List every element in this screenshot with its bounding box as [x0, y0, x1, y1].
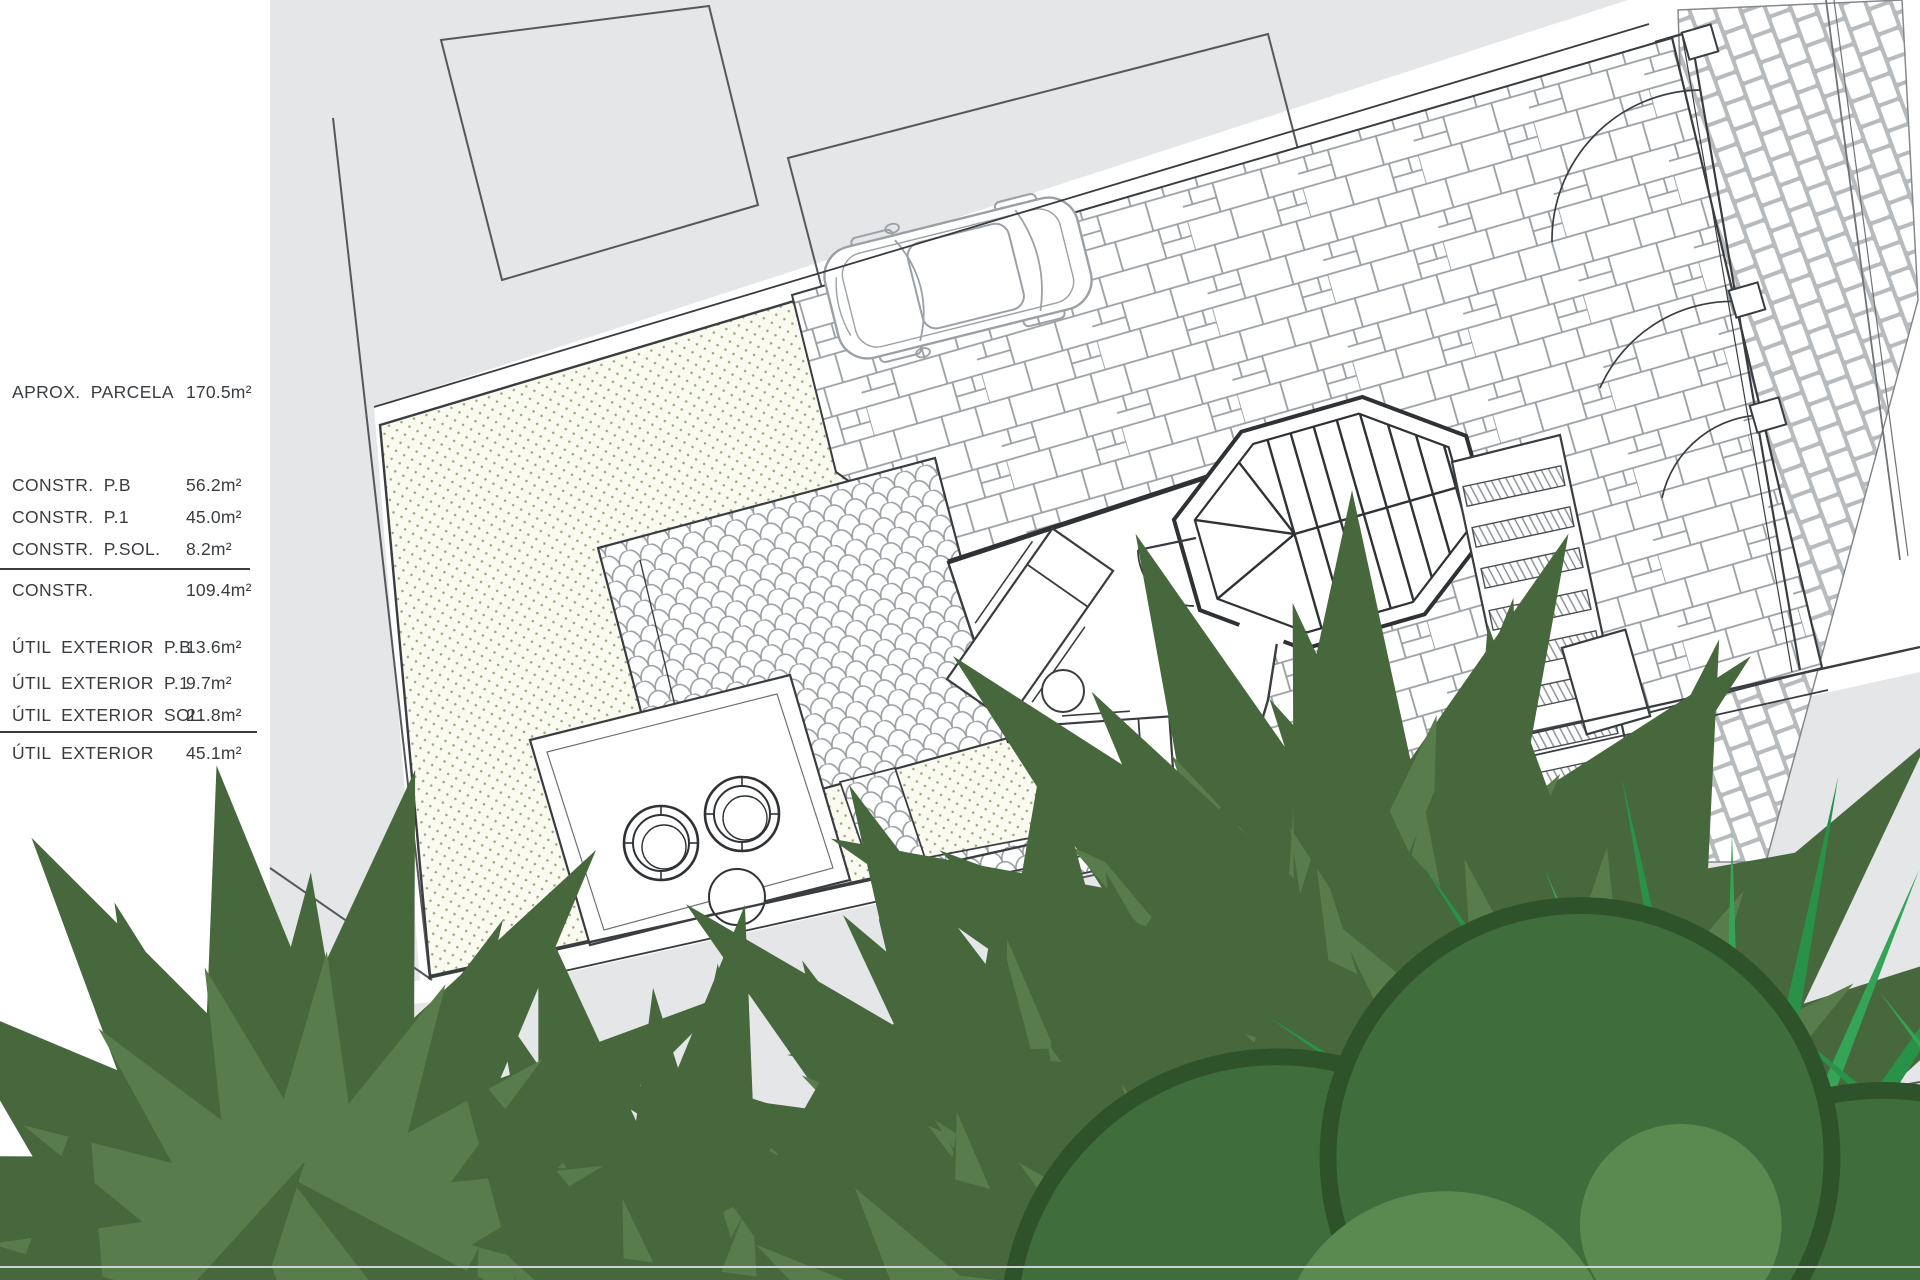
legend-label: CONSTR. P.1 [12, 507, 129, 527]
site-plan-page: APROX. PARCELA 170.5m² CONSTR. P.B 56.2m… [0, 0, 1920, 1280]
legend-row-constr-pb: CONSTR. P.B 56.2m² [12, 475, 131, 496]
legend-label: ÚTIL EXTERIOR P.B [12, 637, 191, 657]
page-edge-line [0, 1266, 1920, 1268]
legend-divider [0, 731, 257, 733]
legend-label: CONSTR. P.SOL. [12, 539, 160, 559]
legend-label: ÚTIL EXTERIOR SOL. [12, 705, 206, 725]
legend-divider [0, 568, 250, 570]
legend-row-parcela: APROX. PARCELA 170.5m² [12, 382, 174, 403]
legend-value: 45.1m² [186, 743, 242, 764]
legend-row-constr-psol: CONSTR. P.SOL. 8.2m² [12, 539, 160, 560]
ring-chair-icon [624, 806, 698, 880]
legend-value: 21.8m² [186, 705, 242, 726]
legend-value: 170.5m² [186, 382, 252, 403]
legend-value: 56.2m² [186, 475, 242, 496]
legend-row-util-sol: ÚTIL EXTERIOR SOL. 21.8m² [12, 705, 206, 726]
legend-row-util-p1: ÚTIL EXTERIOR P.1 9.7m² [12, 673, 189, 694]
legend-label: CONSTR. P.B [12, 475, 131, 495]
side-table-icon [1042, 670, 1084, 712]
legend-value: 45.0m² [186, 507, 242, 528]
legend-row-util-total: ÚTIL EXTERIOR 45.1m² [12, 743, 154, 764]
legend-row-constr-p1: CONSTR. P.1 45.0m² [12, 507, 129, 528]
legend-label: ÚTIL EXTERIOR [12, 743, 154, 763]
legend-value: 9.7m² [186, 673, 232, 694]
round-table-icon [709, 869, 765, 925]
ring-chair-icon [705, 777, 779, 851]
legend-value: 13.6m² [186, 637, 242, 658]
legend-row-util-pb: ÚTIL EXTERIOR P.B 13.6m² [12, 637, 191, 658]
legend-value: 109.4m² [186, 580, 252, 601]
legend-label: APROX. PARCELA [12, 382, 174, 402]
legend-label: ÚTIL EXTERIOR P.1 [12, 673, 189, 693]
legend-label: CONSTR. [12, 580, 94, 600]
legend-row-constr-total: CONSTR. 109.4m² [12, 580, 94, 601]
legend-value: 8.2m² [186, 539, 232, 560]
site-plan-drawing [0, 0, 1920, 1280]
